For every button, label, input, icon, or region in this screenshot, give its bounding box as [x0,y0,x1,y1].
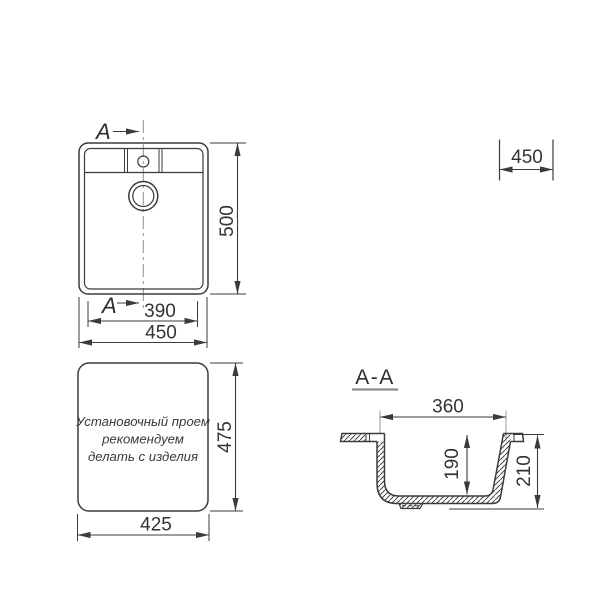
drawing-canvas: A A 500 390 450 450 Установочный проем р… [0,0,600,600]
dim-label-425: 425 [140,515,172,536]
dim-label-190: 190 [442,448,463,480]
technical-drawing: A A 500 390 450 450 Установочный проем р… [0,0,600,600]
floor-hatch [397,496,492,504]
section-marker-a-top: A [94,119,111,144]
dim-label-500: 500 [217,205,238,237]
dim-label-360: 360 [432,397,464,418]
left-wall-inner [385,434,400,497]
section-view: A-A 360 190 [341,366,545,509]
section-title: A-A [355,366,395,389]
left-flange-hatch [341,434,367,442]
cutout-note-line1: Установочный проем [75,414,210,429]
cabinet-width-dim: 450 [500,140,554,181]
top-view: A A 500 390 450 [79,119,246,348]
left-wall-hatch [377,442,399,504]
section-marker-a-bottom: A [100,293,117,318]
dim-label-450: 450 [145,323,177,344]
cabinet-dim-label: 450 [511,147,543,168]
dim-label-475: 475 [215,421,236,453]
cutout-note-line3: делать с изделия [88,449,198,464]
dim-label-390: 390 [144,301,176,322]
dim-label-210: 210 [514,455,535,487]
cutout-view: Установочный проем рекомендуем делать с … [75,363,243,541]
cutout-note-line2: рекомендуем [101,432,184,447]
